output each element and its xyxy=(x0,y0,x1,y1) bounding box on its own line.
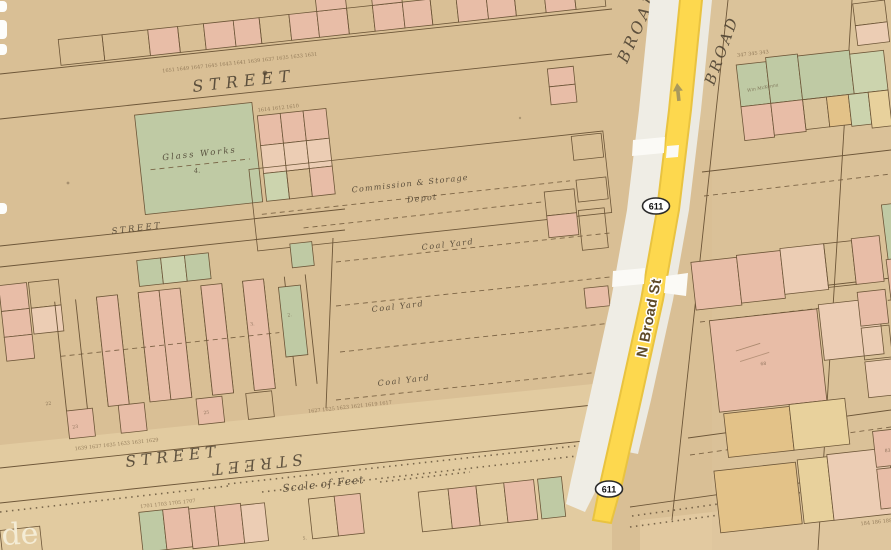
route-shield-number: 611 xyxy=(649,202,664,212)
cell-number: 23 xyxy=(72,424,78,431)
cross-street-band xyxy=(632,137,665,156)
cell-number: 25 xyxy=(203,410,209,417)
cross-street-notch xyxy=(666,145,679,158)
cell-number: 22 xyxy=(45,401,51,408)
route-611-shield-top: 611 xyxy=(643,198,670,214)
cell-number: 83 xyxy=(884,448,890,455)
corner-text-fragment: de xyxy=(1,516,40,550)
glass-works-number: 4. xyxy=(192,166,200,175)
map-canvas[interactable]: 1651 1649 1647 1645 1643 1641 1639 1637 … xyxy=(0,0,891,550)
cross-street-band xyxy=(612,268,645,287)
cross-street-notch xyxy=(664,273,688,296)
route-611-shield-bottom: 611 xyxy=(596,481,623,497)
route-shield-number: 611 xyxy=(602,485,617,495)
cell-number: 68 xyxy=(760,361,766,368)
map-viewport[interactable]: 1651 1649 1647 1645 1643 1641 1639 1637 … xyxy=(0,0,891,550)
